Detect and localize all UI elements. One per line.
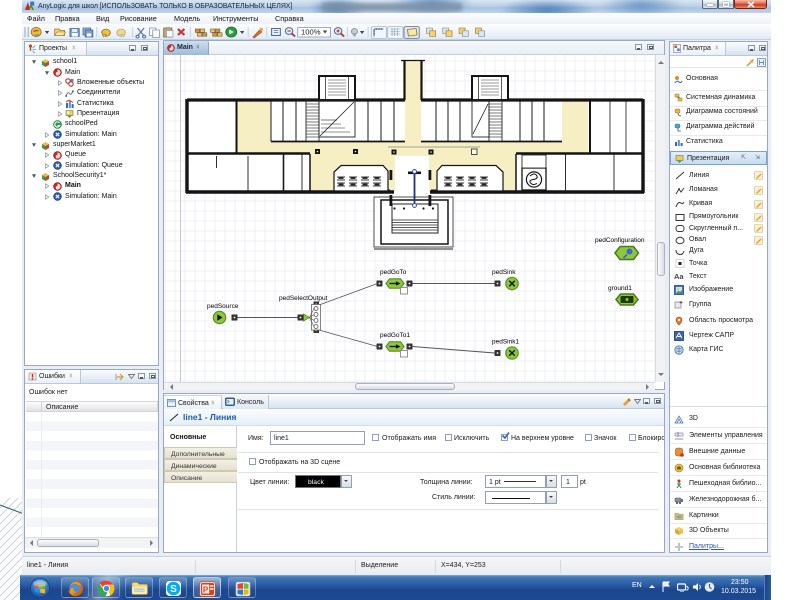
svg-text:pedSource: pedSource [207, 303, 239, 310]
svg-text:pedSink: pedSink [492, 269, 516, 276]
svg-text:pedSink1: pedSink1 [492, 339, 519, 346]
svg-text:pedSelectOutput: pedSelectOutput [279, 295, 328, 302]
svg-text:pedConfiguration: pedConfiguration [595, 237, 645, 244]
svg-text:pedGoTo: pedGoTo [380, 269, 407, 276]
svg-text:100%: 100% [301, 28, 321, 37]
svg-text:pedGoTo1: pedGoTo1 [380, 332, 410, 339]
svg-text:S: S [170, 584, 177, 595]
svg-text:ground1: ground1 [608, 285, 632, 292]
svg-text:P: P [203, 585, 209, 594]
